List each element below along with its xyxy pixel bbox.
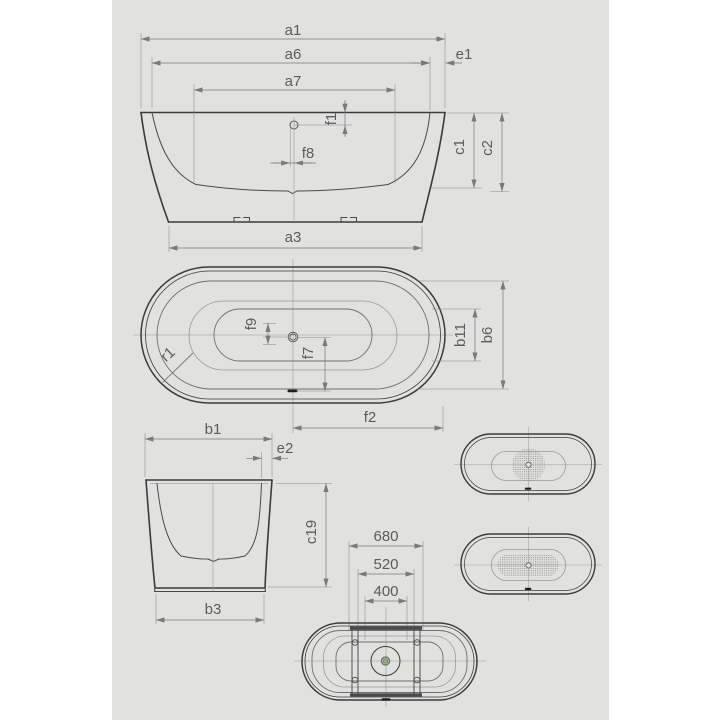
dim-label-f2: f2 (364, 409, 377, 426)
dim-label-f7: f7 (300, 347, 317, 360)
sheet-background (112, 0, 609, 720)
frame-crossbar-top (350, 627, 422, 630)
overflow-icon (525, 588, 532, 590)
dim-label-c19: c19 (303, 520, 320, 544)
bathtub-dimension-drawing: a1 a6 e1 a7 f1 (0, 0, 720, 720)
dim-label-c2: c2 (479, 140, 496, 156)
dim-label-a1: a1 (285, 22, 302, 39)
technical-drawing-sheet: a1 a6 e1 a7 f1 (0, 0, 720, 720)
dim-label-e2: e2 (277, 440, 294, 457)
frame-crossbar-bottom (350, 693, 422, 696)
dim-label-b3: b3 (205, 601, 222, 618)
dim-label-b11: b11 (452, 323, 469, 347)
dim-label-c1: c1 (451, 139, 468, 155)
dim-label-400: 400 (373, 583, 398, 600)
drain-icon (526, 462, 531, 467)
overflow-icon (525, 488, 532, 490)
overflow-icon (382, 698, 391, 700)
dim-label-520: 520 (373, 556, 398, 573)
dim-label-680: 680 (373, 528, 398, 545)
dim-label-a3: a3 (285, 229, 302, 246)
dim-label-a6: a6 (285, 46, 302, 63)
dim-label-f1: f1 (323, 113, 340, 126)
drain-icon (526, 563, 531, 568)
dim-label-a7: a7 (285, 73, 302, 90)
dim-label-e1: e1 (456, 46, 473, 63)
dim-label-f8: f8 (302, 145, 315, 162)
dim-label-b6: b6 (479, 327, 496, 344)
dim-label-b1: b1 (205, 421, 222, 438)
drain-outlet-icon (383, 659, 388, 664)
dim-label-f9: f9 (243, 318, 260, 331)
